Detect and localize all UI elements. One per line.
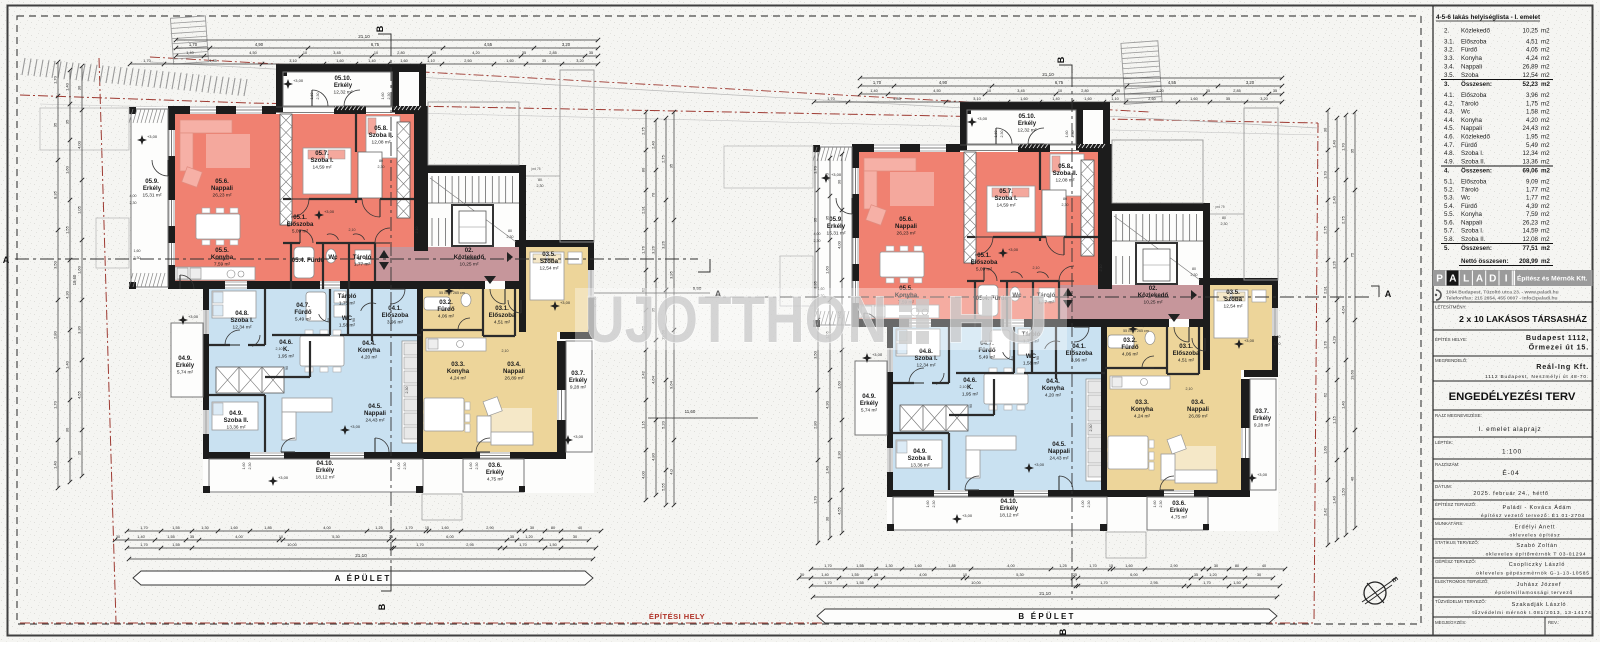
svg-text:+3,00: +3,00 <box>293 78 304 83</box>
svg-text:80: 80 <box>641 167 646 172</box>
svg-text:2,91: 2,91 <box>641 205 646 214</box>
svg-text:4.: 4. <box>1444 168 1449 175</box>
svg-text:5.1.: 5.1. <box>1444 179 1455 186</box>
svg-text:2,30: 2,30 <box>537 184 544 188</box>
svg-text:3,20: 3,20 <box>562 42 571 47</box>
svg-text:okleveles építész: okleveles építész <box>1509 533 1560 539</box>
svg-text:1,95 m²: 1,95 m² <box>962 392 979 398</box>
svg-text:1,55: 1,55 <box>172 526 179 530</box>
svg-text:3.4.: 3.4. <box>1444 64 1455 71</box>
svg-text:+3,00: +3,00 <box>560 300 571 305</box>
svg-text:TŰZVÉDELMI TERVEZŐ:: TŰZVÉDELMI TERVEZŐ: <box>1435 599 1486 604</box>
svg-text:2.: 2. <box>1444 28 1449 35</box>
svg-text:Előszoba: Előszoba <box>1461 39 1487 46</box>
svg-text:A: A <box>3 255 10 265</box>
svg-text:9,28 m²: 9,28 m² <box>1254 423 1271 429</box>
svg-text:12,32 m²: 12,32 m² <box>1018 128 1037 134</box>
svg-text:Nettó összesen:: Nettó összesen: <box>1461 258 1508 265</box>
svg-text:1,77: 1,77 <box>1526 195 1539 202</box>
svg-text:Nappali: Nappali <box>895 223 917 230</box>
svg-text:5,74 m²: 5,74 m² <box>861 408 878 414</box>
svg-text:Paládi - Kovács Ádám: Paládi - Kovács Ádám <box>1502 504 1571 511</box>
svg-text:Előszoba: Előszoba <box>1461 179 1487 186</box>
svg-text:4,64: 4,64 <box>1341 305 1346 314</box>
svg-text:12,08 m²: 12,08 m² <box>372 140 391 146</box>
svg-text:Konyha: Konyha <box>1461 211 1483 218</box>
svg-text:1,60: 1,60 <box>310 93 314 100</box>
svg-text:35: 35 <box>669 163 674 168</box>
svg-text:Konyha: Konyha <box>211 254 234 261</box>
svg-text:1,60: 1,60 <box>1323 445 1328 454</box>
svg-text:Összesen:: Összesen: <box>1461 81 1492 88</box>
svg-text:ÉPÍTÉSZ TERVEZŐ:: ÉPÍTÉSZ TERVEZŐ: <box>1435 502 1476 507</box>
svg-text:Budapest 1112,: Budapest 1112, <box>1526 333 1589 342</box>
svg-text:3,20: 3,20 <box>576 59 583 63</box>
svg-text:1,50: 1,50 <box>1341 487 1346 496</box>
svg-text:m2: m2 <box>1541 245 1551 252</box>
svg-text:Előszoba: Előszoba <box>1173 350 1200 357</box>
svg-text:Nappali: Nappali <box>1048 448 1070 455</box>
svg-text:35: 35 <box>190 535 194 539</box>
svg-text:1,70: 1,70 <box>813 165 818 174</box>
svg-text:6,75: 6,75 <box>371 42 380 47</box>
svg-text:90: 90 <box>285 366 289 370</box>
svg-text:Nappali: Nappali <box>1461 64 1482 71</box>
svg-text:Szoba I.: Szoba I. <box>994 195 1017 202</box>
svg-text:B: B <box>1056 56 1066 63</box>
svg-text:Reál-Ing Kft.: Reál-Ing Kft. <box>1536 362 1589 371</box>
svg-text:B: B <box>377 603 387 610</box>
svg-text:19,60: 19,60 <box>72 274 77 285</box>
svg-text:Szoba II.: Szoba II. <box>224 417 249 424</box>
svg-text:35: 35 <box>510 535 514 539</box>
svg-text:1,25: 1,25 <box>375 526 382 530</box>
svg-text:10: 10 <box>374 51 378 55</box>
svg-text:4.8.: 4.8. <box>1444 150 1455 157</box>
svg-text:m2: m2 <box>1541 47 1550 54</box>
svg-text:Nappali: Nappali <box>1187 406 1209 413</box>
svg-text:1094 Budapest, Tűzoltó utca 23: 1094 Budapest, Tűzoltó utca 23. - www.pa… <box>1446 290 1559 296</box>
svg-text:1,55: 1,55 <box>65 225 70 234</box>
svg-text:Erkély: Erkély <box>143 185 162 192</box>
svg-text:4,00: 4,00 <box>235 535 242 539</box>
svg-text:UJOTTHON: UJOTTHON <box>585 282 887 356</box>
svg-text:5,30: 5,30 <box>332 535 339 539</box>
svg-text:1,70: 1,70 <box>813 495 818 504</box>
svg-text:26,89: 26,89 <box>1523 64 1539 71</box>
svg-text:1,30: 1,30 <box>201 526 208 530</box>
svg-text:1,60: 1,60 <box>400 59 407 63</box>
svg-text:62: 62 <box>1323 392 1328 397</box>
svg-text:77,51: 77,51 <box>1523 245 1539 252</box>
svg-text:24,43 m²: 24,43 m² <box>366 418 385 424</box>
svg-text:1,40: 1,40 <box>1341 400 1346 409</box>
svg-text:30: 30 <box>65 427 70 432</box>
svg-text:35: 35 <box>542 59 546 63</box>
svg-text:+3,00: +3,00 <box>324 209 335 214</box>
svg-text:13,36 m²: 13,36 m² <box>227 425 246 431</box>
svg-text:Tároló: Tároló <box>353 254 372 261</box>
svg-text:Szoba II.: Szoba II. <box>1053 170 1078 177</box>
svg-text:4.3.: 4.3. <box>1444 109 1455 116</box>
svg-text:3,50: 3,50 <box>53 260 58 269</box>
svg-text:Konyha: Konyha <box>358 347 381 354</box>
svg-text:WC: WC <box>342 315 353 322</box>
svg-text:m2: m2 <box>1541 211 1550 218</box>
svg-text:2,42: 2,42 <box>1323 507 1328 516</box>
svg-text:5,55: 5,55 <box>661 482 666 491</box>
svg-text:Erdélyi Anett: Erdélyi Anett <box>1515 525 1556 531</box>
svg-text:4,80: 4,80 <box>651 452 656 461</box>
svg-text:m2: m2 <box>1541 142 1550 149</box>
svg-text:1,15: 1,15 <box>1332 415 1337 424</box>
svg-text:4,20 m²: 4,20 m² <box>1045 393 1062 399</box>
svg-text:12,32 m²: 12,32 m² <box>334 90 353 96</box>
svg-text:35: 35 <box>813 217 818 222</box>
svg-text:12,34: 12,34 <box>1523 150 1539 157</box>
svg-text:26,23 m²: 26,23 m² <box>897 231 916 237</box>
svg-text:1,75: 1,75 <box>1526 101 1539 108</box>
svg-text:1,58 m²: 1,58 m² <box>1023 361 1040 367</box>
svg-text:4.4.: 4.4. <box>1444 117 1455 124</box>
svg-text:Erkély: Erkély <box>569 377 588 384</box>
svg-text:+3,00: +3,00 <box>350 424 361 429</box>
svg-text:10: 10 <box>303 51 307 55</box>
svg-text:1,70: 1,70 <box>189 42 198 47</box>
svg-text:Előszoba: Előszoba <box>1066 350 1093 357</box>
svg-text:4,39: 4,39 <box>1526 203 1539 210</box>
svg-text:épületvillamossági tervező: épületvillamossági tervező <box>1495 590 1573 596</box>
svg-text:m2: m2 <box>1541 64 1550 71</box>
svg-text:m2: m2 <box>1541 72 1550 79</box>
svg-text:55 cm × 265 cm: 55 cm × 265 cm <box>439 291 465 295</box>
svg-text:75: 75 <box>1350 252 1355 257</box>
svg-text:Fürdő: Fürdő <box>1461 142 1478 149</box>
svg-text:+3,00: +3,00 <box>147 134 158 139</box>
svg-text:m2: m2 <box>1541 39 1550 46</box>
svg-text:4,06 m²: 4,06 m² <box>438 314 455 320</box>
svg-text:5,49: 5,49 <box>1526 142 1539 149</box>
svg-text:Tároló: Tároló <box>338 293 357 300</box>
svg-text:1,95 m²: 1,95 m² <box>278 354 295 360</box>
svg-text:26,23: 26,23 <box>1523 220 1539 227</box>
svg-text:10: 10 <box>279 535 283 539</box>
svg-text:Fürdő: Fürdő <box>1461 47 1478 54</box>
svg-text:3,45: 3,45 <box>333 51 340 55</box>
svg-text:m2: m2 <box>1541 159 1550 166</box>
svg-text:3,95: 3,95 <box>669 270 674 279</box>
svg-text:1,70: 1,70 <box>405 526 412 530</box>
svg-text:4.5.: 4.5. <box>1444 125 1455 132</box>
svg-text:MEGJEGYZÉS:: MEGJEGYZÉS: <box>1435 620 1466 625</box>
svg-text:80: 80 <box>508 229 512 233</box>
svg-text:1,70: 1,70 <box>143 59 150 63</box>
svg-text:1,58: 1,58 <box>1526 109 1539 116</box>
svg-text:05.4. Fürdő: 05.4. Fürdő <box>292 257 325 264</box>
svg-text:HU: HU <box>946 282 1048 356</box>
svg-text:DÁTUM:: DÁTUM: <box>1435 484 1452 489</box>
svg-text:4,30: 4,30 <box>825 400 830 409</box>
svg-text:3,30: 3,30 <box>837 450 842 459</box>
svg-text:A: A <box>1449 274 1456 285</box>
svg-text:3,96 m²: 3,96 m² <box>387 320 404 326</box>
svg-text:5,09 m²: 5,09 m² <box>292 229 309 235</box>
svg-text:Szoba II.: Szoba II. <box>908 455 933 462</box>
svg-text:1,70: 1,70 <box>53 400 58 409</box>
svg-text:4,24 m²: 4,24 m² <box>450 376 467 382</box>
svg-text:4,55: 4,55 <box>77 390 82 399</box>
svg-text:Szabó Zoltán: Szabó Zoltán <box>1516 543 1557 549</box>
svg-text:Szoba I.: Szoba I. <box>1461 150 1484 157</box>
svg-text:Erkély: Erkély <box>334 82 353 89</box>
svg-text:Nappali: Nappali <box>1461 220 1482 227</box>
svg-text:10,25: 10,25 <box>1523 28 1539 35</box>
svg-text:14,59 m²: 14,59 m² <box>997 203 1016 209</box>
svg-text:1,75 m²: 1,75 m² <box>339 301 356 307</box>
svg-text:35: 35 <box>589 51 593 55</box>
svg-text:30: 30 <box>825 516 830 521</box>
svg-text:3.5.: 3.5. <box>1444 72 1455 79</box>
svg-text:13,36 m²: 13,36 m² <box>911 463 930 469</box>
svg-text:1,60: 1,60 <box>242 463 246 470</box>
svg-text:15,31 m²: 15,31 m² <box>143 193 162 199</box>
svg-text:I. emelet alaprajz: I. emelet alaprajz <box>1478 426 1541 433</box>
svg-text:Juhász József: Juhász József <box>1517 582 1562 588</box>
svg-text:2,30: 2,30 <box>387 93 391 100</box>
svg-text:Közlekedő: Közlekedő <box>1138 292 1169 299</box>
svg-text:9,09: 9,09 <box>1526 179 1539 186</box>
svg-text:1,60: 1,60 <box>469 463 473 470</box>
svg-text:ÉPÍTÉS HELYE:: ÉPÍTÉS HELYE: <box>1435 337 1467 342</box>
svg-text:3,10: 3,10 <box>289 59 296 63</box>
svg-text:2,60: 2,60 <box>464 59 471 63</box>
svg-text:2,10: 2,10 <box>415 227 419 234</box>
svg-text:1,40: 1,40 <box>825 465 830 474</box>
svg-text:1,60: 1,60 <box>381 93 385 100</box>
svg-text:15,31 m²: 15,31 m² <box>827 231 846 237</box>
svg-text:2,30: 2,30 <box>507 235 514 239</box>
svg-text:1,60: 1,60 <box>336 59 343 63</box>
svg-text:Erkély: Erkély <box>1253 415 1272 422</box>
svg-text:2,75: 2,75 <box>661 154 666 163</box>
svg-text:okleveles gépészmérnök G-1-13-: okleveles gépészmérnök G-1-13-10585 <box>1476 571 1590 577</box>
svg-text:Erkély: Erkély <box>860 400 879 407</box>
svg-text:m2: m2 <box>1541 109 1550 116</box>
svg-text:4,64: 4,64 <box>651 375 656 384</box>
svg-text:5.4.: 5.4. <box>1444 203 1455 210</box>
svg-text:1,60: 1,60 <box>825 265 830 274</box>
svg-text:B: B <box>1058 628 1068 635</box>
svg-text:m2: m2 <box>1541 258 1551 265</box>
svg-text:5.3.: 5.3. <box>1444 195 1455 202</box>
svg-text:3.: 3. <box>1444 81 1449 88</box>
svg-text:1,77: 1,77 <box>1526 187 1539 194</box>
svg-text:2,30: 2,30 <box>405 387 409 394</box>
svg-text:1,40: 1,40 <box>137 535 144 539</box>
svg-text:m2: m2 <box>1541 55 1550 62</box>
svg-text:A: A <box>1385 289 1392 299</box>
svg-text:4,50: 4,50 <box>249 51 256 55</box>
svg-text:+3,00: +3,00 <box>188 314 199 319</box>
svg-text:26,89 m²: 26,89 m² <box>1189 414 1208 420</box>
svg-text:4.6.: 4.6. <box>1444 134 1455 141</box>
svg-text:4,20 m²: 4,20 m² <box>361 355 378 361</box>
svg-text:10,25 m²: 10,25 m² <box>460 262 479 268</box>
svg-text:Szoba II.: Szoba II. <box>369 132 394 139</box>
svg-text:30: 30 <box>116 535 120 539</box>
svg-text:m2: m2 <box>1541 150 1550 157</box>
svg-text:69,06: 69,06 <box>1523 168 1539 175</box>
svg-text:GÉPÉSZ TERVEZŐ:: GÉPÉSZ TERVEZŐ: <box>1435 559 1476 564</box>
svg-text:5.6.: 5.6. <box>1444 220 1455 227</box>
svg-text:m2: m2 <box>1541 92 1550 99</box>
svg-text:30: 30 <box>530 526 534 530</box>
svg-text:2,30: 2,30 <box>316 93 320 100</box>
svg-text:4,51: 4,51 <box>1526 39 1539 46</box>
svg-text:REV.:: REV.: <box>1548 620 1559 625</box>
svg-text:4,51 m²: 4,51 m² <box>1178 358 1195 364</box>
svg-text:K.: K. <box>967 384 973 391</box>
svg-text:m2: m2 <box>1541 228 1550 235</box>
svg-text:1,60: 1,60 <box>134 249 141 253</box>
svg-text:80: 80 <box>379 159 383 163</box>
svg-text:24,43 m²: 24,43 m² <box>1050 456 1069 462</box>
svg-text:52,23: 52,23 <box>1523 81 1539 88</box>
svg-text:2,85: 2,85 <box>549 51 556 55</box>
svg-text:4,55: 4,55 <box>484 42 493 47</box>
svg-text:26,89 m²: 26,89 m² <box>505 376 524 382</box>
svg-text:D: D <box>1489 274 1496 285</box>
svg-text:Csopliczky László: Csopliczky László <box>1509 562 1565 568</box>
svg-text:70: 70 <box>651 192 656 197</box>
svg-text:1,40: 1,40 <box>65 360 70 369</box>
svg-text:2,90: 2,90 <box>486 526 493 530</box>
svg-text:4,20: 4,20 <box>1526 117 1539 124</box>
svg-text:3,96: 3,96 <box>1526 92 1539 99</box>
svg-text:2,30: 2,30 <box>130 201 137 205</box>
svg-text:9,64: 9,64 <box>669 380 674 389</box>
svg-text:3.1.: 3.1. <box>1444 39 1455 46</box>
svg-text:2,10: 2,10 <box>349 228 356 232</box>
svg-text:10,00: 10,00 <box>287 543 297 547</box>
svg-text:Tároló: Tároló <box>1461 187 1479 194</box>
svg-text:3,96 m²: 3,96 m² <box>1071 358 1088 364</box>
svg-text:Konyha: Konyha <box>1461 117 1483 124</box>
svg-text:Nappali: Nappali <box>364 410 386 417</box>
svg-text:L: L <box>1463 274 1469 285</box>
svg-text:3,26: 3,26 <box>1332 260 1337 269</box>
svg-text:2,30: 2,30 <box>378 165 385 169</box>
svg-text:4,00: 4,00 <box>837 240 842 249</box>
svg-text:4.2.: 4.2. <box>1444 101 1455 108</box>
svg-text:Szoba I.: Szoba I. <box>914 355 937 362</box>
svg-text:1,70: 1,70 <box>1323 170 1328 179</box>
svg-text:1,70: 1,70 <box>140 526 147 530</box>
svg-text:Előszoba: Előszoba <box>382 312 409 319</box>
svg-text:6,00: 6,00 <box>446 535 453 539</box>
svg-text:4,30: 4,30 <box>65 290 70 299</box>
svg-text:5,49 m²: 5,49 m² <box>295 317 312 323</box>
svg-text:2,40: 2,40 <box>1332 195 1337 204</box>
svg-text:12,34 m²: 12,34 m² <box>233 325 252 331</box>
svg-text:Szoba I.: Szoba I. <box>310 157 333 164</box>
svg-text:építész vezető tervező: É1 01-: építész vezető tervező: É1 01-2704 <box>1481 512 1585 519</box>
svg-text:1,40: 1,40 <box>53 460 58 469</box>
svg-text:26,23 m²: 26,23 m² <box>213 193 232 199</box>
svg-text:Előszoba: Előszoba <box>1461 92 1487 99</box>
svg-text:Wc: Wc <box>1461 195 1470 202</box>
svg-text:1,76: 1,76 <box>641 245 646 254</box>
svg-text:1,70: 1,70 <box>416 543 423 547</box>
svg-text:Nappali: Nappali <box>1461 125 1482 132</box>
svg-text:1,70: 1,70 <box>140 543 147 547</box>
svg-text:LÉPTÉK:: LÉPTÉK: <box>1435 440 1453 445</box>
svg-text:30: 30 <box>1323 127 1328 132</box>
svg-text:prd 75: prd 75 <box>531 167 540 171</box>
svg-text:Nappali: Nappali <box>503 368 525 375</box>
svg-text:4,00: 4,00 <box>641 470 646 479</box>
svg-text:1,70: 1,70 <box>1341 142 1346 151</box>
svg-text:STATIKUS TERVEZŐ:: STATIKUS TERVEZŐ: <box>1435 540 1479 545</box>
svg-text:35: 35 <box>432 51 436 55</box>
svg-text:24,43: 24,43 <box>1523 125 1539 132</box>
svg-text:1,76: 1,76 <box>1323 340 1328 349</box>
svg-text:4,75 m²: 4,75 m² <box>1171 515 1188 521</box>
svg-text:11,60: 11,60 <box>685 409 696 414</box>
svg-text:4,29: 4,29 <box>1332 335 1337 344</box>
svg-text:80: 80 <box>538 178 542 182</box>
svg-text:12,54 m²: 12,54 m² <box>1224 304 1243 310</box>
svg-text:3,26: 3,26 <box>651 245 656 254</box>
svg-text:Nappali: Nappali <box>211 185 233 192</box>
svg-text:+3,00: +3,00 <box>278 475 289 480</box>
svg-text:1,40: 1,40 <box>1332 139 1337 148</box>
svg-text:1,50: 1,50 <box>549 543 556 547</box>
svg-text:Fürdő: Fürdő <box>294 309 312 316</box>
svg-text:2,75: 2,75 <box>1323 225 1328 234</box>
svg-text:2,75: 2,75 <box>1341 215 1346 224</box>
svg-text:12,54 m²: 12,54 m² <box>540 266 559 272</box>
svg-text:Erkély: Erkély <box>486 469 505 476</box>
svg-text:30: 30 <box>573 535 577 539</box>
svg-text:5,09 m²: 5,09 m² <box>976 267 993 273</box>
svg-text:4,24 m²: 4,24 m² <box>1134 414 1151 420</box>
svg-text:4,24: 4,24 <box>1526 55 1539 62</box>
svg-text:13,36: 13,36 <box>1523 159 1539 166</box>
svg-text:5.2.: 5.2. <box>1444 187 1455 194</box>
svg-text:Szoba I.: Szoba I. <box>230 317 253 324</box>
svg-text:m2: m2 <box>1541 203 1550 210</box>
svg-text:m2: m2 <box>1541 125 1550 132</box>
svg-text:2 x 10 LAKÁSOS TÁRSASHÁZ: 2 x 10 LAKÁSOS TÁRSASHÁZ <box>1459 314 1587 324</box>
svg-text:9,28 m²: 9,28 m² <box>570 385 587 391</box>
svg-text:4,06 m²: 4,06 m² <box>1122 352 1139 358</box>
svg-text:Közlekedő: Közlekedő <box>1461 28 1490 35</box>
svg-text:4,00: 4,00 <box>323 526 330 530</box>
svg-text:21,10: 21,10 <box>355 553 367 558</box>
svg-text:14,59 m²: 14,59 m² <box>313 165 332 171</box>
svg-text:21,10: 21,10 <box>358 34 370 39</box>
svg-text:3.2.: 3.2. <box>1444 47 1455 54</box>
svg-text:1,60: 1,60 <box>441 526 448 530</box>
svg-text:4,05: 4,05 <box>1526 47 1539 54</box>
svg-text:8,35: 8,35 <box>53 190 58 199</box>
svg-text:ELEKTROMOS TERVEZŐ:: ELEKTROMOS TERVEZŐ: <box>1435 579 1489 584</box>
svg-text:1,40: 1,40 <box>368 59 375 63</box>
svg-text:A ÉPÜLET: A ÉPÜLET <box>335 574 392 583</box>
svg-text:4,20: 4,20 <box>472 51 479 55</box>
svg-text:15: 15 <box>425 526 429 530</box>
